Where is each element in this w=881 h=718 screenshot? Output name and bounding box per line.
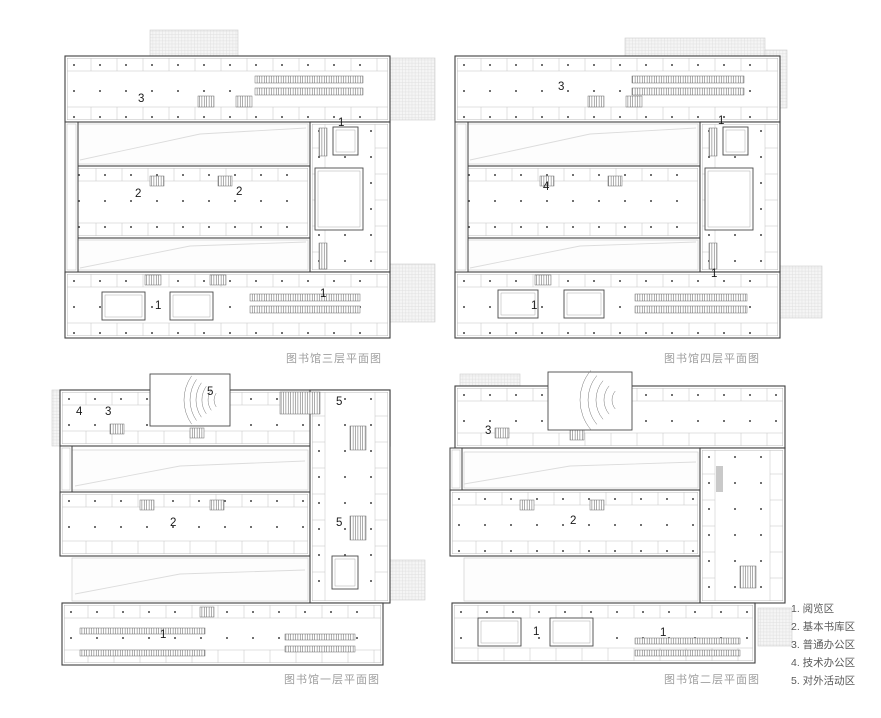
zone-label: 2 [570, 515, 576, 527]
zone-label: 4 [543, 181, 550, 193]
caption-floor1: 图书馆一层平面图 [248, 671, 380, 687]
plan-drawing: 4355251 [52, 374, 425, 665]
plan-drawing: 3211 [450, 370, 792, 663]
caption-floor4: 图书馆四层平面图 [628, 350, 760, 366]
zone-label: 5 [336, 396, 342, 408]
zone-label: 1 [660, 627, 666, 639]
plan-drawing: 31411 [455, 38, 822, 338]
zone-label: 1 [320, 288, 326, 300]
zone-label: 5 [207, 386, 213, 398]
zone-label: 1 [711, 268, 717, 280]
legend-item: 1. 阅览区 [791, 600, 881, 618]
zone-label: 3 [485, 425, 491, 437]
zone-label: 1 [718, 115, 724, 127]
zone-label: 1 [155, 300, 161, 312]
legend-item: 3. 普通办公区 [791, 636, 881, 654]
caption-floor2: 图书馆二层平面图 [628, 671, 760, 687]
floor-plan-2f: 3211 [440, 366, 830, 701]
plan-drawing: 312211 [65, 30, 435, 338]
zone-label: 4 [76, 406, 83, 418]
zone-label: 3 [558, 81, 564, 93]
floor-plan-3f: 312211 [50, 18, 440, 353]
floor-plan-1f: 4355251 [50, 366, 440, 701]
zone-label: 1 [531, 300, 537, 312]
zone-label: 1 [160, 629, 166, 641]
legend-item: 2. 基本书库区 [791, 618, 881, 636]
legend: 1. 阅览区 2. 基本书库区 3. 普通办公区 4. 技术办公区 5. 对外活… [791, 600, 881, 690]
zone-label: 2 [170, 517, 176, 529]
zone-label: 3 [138, 93, 144, 105]
zone-label: 1 [533, 626, 539, 638]
legend-item: 4. 技术办公区 [791, 654, 881, 672]
floor-plan-4f: 31411 [440, 18, 830, 353]
zone-label: 1 [338, 117, 344, 129]
legend-item: 5. 对外活动区 [791, 672, 881, 690]
zone-label: 2 [135, 188, 141, 200]
zone-label: 3 [105, 406, 111, 418]
zone-label: 5 [336, 517, 342, 529]
caption-floor3: 图书馆三层平面图 [250, 350, 382, 366]
zone-label: 2 [236, 186, 242, 198]
